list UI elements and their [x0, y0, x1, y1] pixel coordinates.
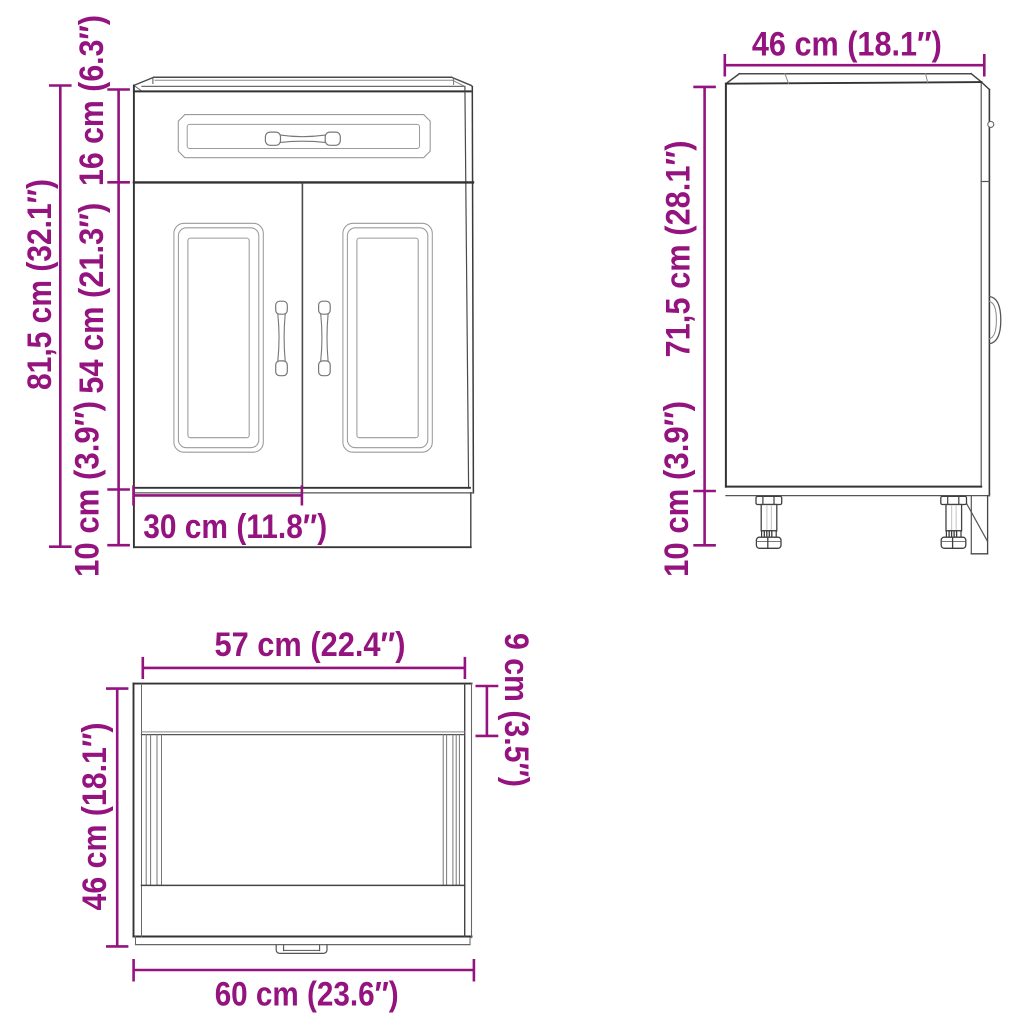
svg-text:81,5 cm (32.1″): 81,5 cm (32.1″) [21, 179, 59, 390]
svg-text:10 cm (3.9″): 10 cm (3.9″) [69, 401, 107, 577]
svg-text:30 cm (11.8″): 30 cm (11.8″) [143, 508, 327, 546]
svg-text:9 cm (3.5″): 9 cm (3.5″) [497, 633, 535, 787]
svg-text:46 cm (18.1″): 46 cm (18.1″) [76, 723, 114, 911]
svg-text:46 cm (18.1″): 46 cm (18.1″) [752, 25, 942, 63]
svg-text:54 cm (21.3″): 54 cm (21.3″) [73, 203, 111, 394]
svg-text:10 cm (3.9″): 10 cm (3.9″) [658, 401, 696, 577]
svg-text:60 cm (23.6″): 60 cm (23.6″) [215, 976, 399, 1014]
svg-text:16 cm (6.3″): 16 cm (6.3″) [73, 15, 111, 186]
svg-text:57 cm (22.4″): 57 cm (22.4″) [215, 626, 406, 664]
svg-text:71,5 cm (28.1″): 71,5 cm (28.1″) [660, 141, 698, 358]
